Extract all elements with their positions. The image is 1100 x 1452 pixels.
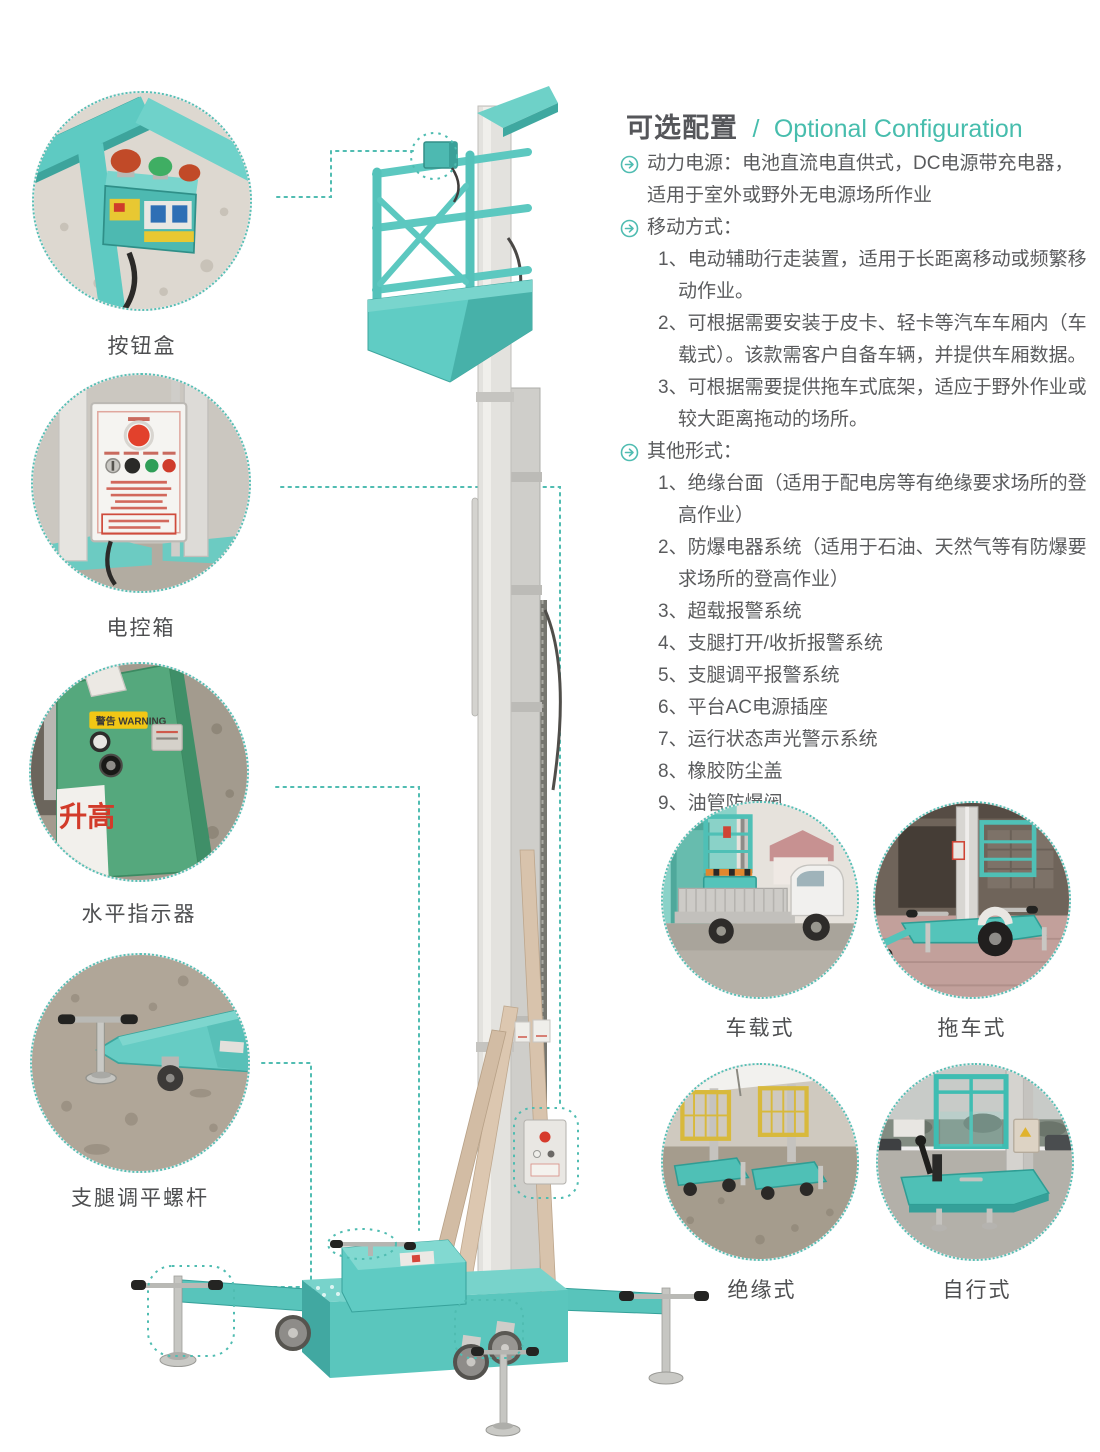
variant-label-truck-mounted: 车载式 bbox=[726, 1012, 795, 1042]
callout-label-button-box: 按钮盒 bbox=[108, 330, 177, 360]
callout-label-leveling-screw: 支腿调平螺杆 bbox=[71, 1182, 209, 1212]
config-group-mobility: 移动方式： 1、电动辅助行走装置，适用于长距离移动或频繁移动作业。 2、可根据需… bbox=[620, 212, 1092, 436]
config-bullet-text: 其他形式： bbox=[647, 436, 742, 468]
arrow-bullet-icon bbox=[620, 219, 639, 243]
config-group-other: 其他形式： 1、绝缘台面（适用于配电房等有绝缘要求场所的登高作业） 2、防爆电器… bbox=[620, 436, 1092, 820]
brochure-page: { "header": { "title_zh": "可选配置", "separ… bbox=[0, 0, 1100, 1452]
variant-label-trailer: 拖车式 bbox=[938, 1012, 1007, 1042]
config-bullet-text: 动力电源：电池直流电直供式，DC电源带充电器，适用于室外或野外无电源场所作业 bbox=[647, 148, 1092, 212]
config-item: 3、可根据需要提供拖车式底架，适应于野外作业或较大距离拖动的场所。 bbox=[658, 372, 1092, 436]
config-item: 3、超载报警系统 bbox=[658, 596, 1092, 628]
config-item: 1、电动辅助行走装置，适用于长距离移动或频繁移动作业。 bbox=[658, 244, 1092, 308]
callout-label-level-indicator: 水平指示器 bbox=[82, 898, 197, 928]
config-group-power: 动力电源：电池直流电直供式，DC电源带充电器，适用于室外或野外无电源场所作业 bbox=[620, 148, 1092, 212]
section-title: 可选配置 / Optional Configuration bbox=[626, 106, 1023, 145]
arrow-bullet-icon bbox=[620, 443, 639, 467]
config-item: 2、防爆电器系统（适用于石油、天然气等有防爆要求场所的登高作业） bbox=[658, 532, 1092, 596]
callout-label-control-box: 电控箱 bbox=[107, 612, 176, 642]
callout-photo-leveling-screw bbox=[30, 953, 250, 1173]
variant-label-self-propelled: 自行式 bbox=[943, 1274, 1012, 1304]
variant-label-insulated: 绝缘式 bbox=[728, 1274, 797, 1304]
variant-photo-insulated bbox=[661, 1063, 859, 1261]
svg-text:升高: 升高 bbox=[59, 801, 115, 832]
optional-config-list: 动力电源：电池直流电直供式，DC电源带充电器，适用于室外或野外无电源场所作业 移… bbox=[620, 148, 1092, 820]
onboard-control-box bbox=[1014, 1119, 1039, 1152]
config-item: 2、可根据需要安装于皮卡、轻卡等汽车车厢内（车载式）。该款需客户自备车辆，并提供… bbox=[658, 308, 1092, 372]
config-item: 1、绝缘台面（适用于配电房等有绝缘要求场所的登高作业） bbox=[658, 468, 1092, 532]
arrow-bullet-icon bbox=[620, 155, 639, 179]
config-item: 5、支腿调平报警系统 bbox=[658, 660, 1092, 692]
config-item: 4、支腿打开/收折报警系统 bbox=[658, 628, 1092, 660]
electric-control-panel bbox=[91, 403, 186, 541]
page-title-en: Optional Configuration bbox=[774, 115, 1023, 143]
config-item: 7、运行状态声光警示系统 bbox=[658, 724, 1092, 756]
callout-photo-control-box bbox=[31, 373, 251, 593]
mast-control-box bbox=[524, 1120, 566, 1184]
config-bullet-text: 移动方式： bbox=[647, 212, 742, 244]
config-item: 6、平台AC电源插座 bbox=[658, 692, 1092, 724]
variant-photo-self-propelled bbox=[876, 1063, 1074, 1261]
title-separator: / bbox=[752, 115, 759, 143]
config-item: 8、橡胶防尘盖 bbox=[658, 756, 1092, 788]
basket-control-box bbox=[424, 142, 459, 202]
variant-photo-truck-mounted bbox=[661, 801, 859, 999]
bubble-level-gauge bbox=[91, 733, 108, 750]
variant-photo-trailer bbox=[873, 801, 1071, 999]
callout-photo-button-box bbox=[32, 91, 252, 311]
callout-photo-level-indicator: 警告 WARNING 升高 bbox=[29, 662, 249, 882]
page-title-zh: 可选配置 bbox=[626, 113, 738, 143]
